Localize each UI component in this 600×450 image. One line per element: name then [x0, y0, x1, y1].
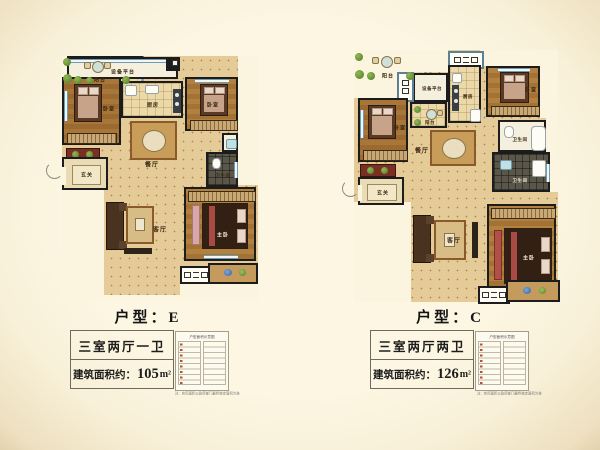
- area-table-title: 户型面积示意图: [480, 334, 523, 339]
- room-label-bedroom: 卧室: [525, 87, 537, 94]
- wardrobe: [491, 208, 556, 219]
- floorplan-e: 设备平台 卧室 厨房: [62, 56, 258, 300]
- bedside-rug: [192, 205, 200, 245]
- mask: [546, 118, 558, 152]
- room-label-dining: 餐厅: [415, 146, 429, 155]
- plan-c-spec: 三室两厅两卫: [371, 331, 473, 360]
- basin: [500, 160, 512, 170]
- hallway-cabinet: [360, 164, 396, 177]
- window-strip: [204, 255, 238, 259]
- plan-c-area-table: 户型面积示意图: [475, 331, 529, 391]
- basin: [226, 139, 237, 149]
- area-value: 126: [437, 366, 459, 383]
- room-kitchen: 厨房: [121, 81, 183, 118]
- window-strip: [546, 164, 550, 182]
- room-master: 主卧: [184, 187, 256, 261]
- plan-e-info-box: 三室两厅一卫 建筑面积约：105m²: [70, 330, 174, 389]
- room-label-living: 客厅: [447, 236, 461, 245]
- plan-e-area: 建筑面积约：105m²: [71, 360, 173, 388]
- decor-green: [239, 269, 246, 276]
- floorplan-c: 厨房 设备平台 阳台 卧室: [354, 50, 558, 302]
- room-label-platform: 设备平台: [422, 86, 442, 92]
- window-strip: [234, 162, 238, 178]
- mask: [540, 50, 558, 118]
- mask: [104, 295, 180, 300]
- room-label-bedroom: 卧室: [394, 125, 406, 132]
- balcony-table: [381, 56, 393, 68]
- mask: [354, 50, 448, 72]
- plan-e-area-table: 户型面积示意图: [175, 331, 229, 391]
- bedside-rug: [494, 230, 502, 280]
- counter: [173, 89, 181, 113]
- room-label-balcony-top: 阳台: [425, 120, 435, 126]
- plan-c-disclaimer: 注：实际面积以政府部门最终核定面积为准: [477, 391, 542, 396]
- area-table-title: 户型面积示意图: [180, 334, 223, 339]
- room-label-bath-bottom: 卫生间: [513, 178, 528, 184]
- room-bath-top: 卫生间: [498, 120, 546, 152]
- room-bedroom-right: 卧室: [486, 66, 540, 117]
- area-value: 105: [137, 366, 159, 383]
- room-balcony-top: 阳台: [410, 102, 447, 128]
- mask: [180, 282, 258, 300]
- door-swing-arc: [342, 180, 359, 197]
- room-label-bath: 卫生间: [216, 173, 231, 179]
- bed: [202, 203, 248, 249]
- room-label-entry: 玄关: [81, 172, 93, 179]
- display-shelf: [506, 280, 560, 302]
- wall-notch: [166, 57, 180, 71]
- room-label-master: 主卧: [217, 232, 229, 239]
- room-bedroom-left: 卧室: [62, 77, 121, 145]
- fridge: [125, 85, 137, 96]
- decor-blue: [224, 269, 232, 276]
- window-strip: [195, 79, 229, 83]
- area-unit: m²: [160, 369, 171, 380]
- decor-green: [539, 287, 546, 294]
- floorplan-sheet: 设备平台 卧室 厨房: [0, 0, 600, 450]
- sofa: [413, 215, 431, 263]
- bathtub: [531, 126, 546, 151]
- room-bath: 卫生间: [206, 152, 238, 187]
- room-label-balcony: 阳台: [382, 73, 394, 80]
- shower: [532, 160, 546, 177]
- display-shelf: [208, 263, 258, 284]
- mask: [62, 190, 104, 300]
- mask: [354, 202, 411, 302]
- sink: [145, 85, 159, 94]
- bed: [74, 84, 102, 122]
- plan-e-spec: 三室两厅一卫: [71, 331, 173, 360]
- tv-bench: [124, 248, 152, 254]
- balcony-table: [92, 61, 104, 73]
- counter: [452, 85, 459, 111]
- wardrobe: [188, 191, 256, 202]
- window-strip: [360, 110, 364, 138]
- bed: [200, 84, 228, 116]
- plan-c-area: 建筑面积约：126m²: [371, 360, 473, 388]
- room-entry: 玄关: [62, 157, 108, 190]
- toilet: [212, 158, 221, 169]
- dining-rug: [130, 121, 177, 160]
- room-label-kitchen: 厨房: [147, 102, 159, 109]
- room-label-living: 客厅: [153, 225, 167, 234]
- window-strip: [64, 91, 68, 121]
- wardrobe: [363, 150, 408, 161]
- area-label: 建筑面积约：: [373, 367, 436, 382]
- area-label: 建筑面积约：: [73, 367, 136, 382]
- room-bedroom-left: 卧室: [358, 98, 408, 162]
- room-entry: 玄关: [358, 177, 404, 205]
- plan-c-title: 户型：C: [370, 306, 530, 327]
- wardrobe: [190, 120, 238, 131]
- dining-rug: [430, 130, 476, 166]
- room-label-kitchen: 厨房: [463, 94, 473, 100]
- living-rug: [126, 206, 154, 244]
- room-label-balcony: 阳台: [94, 77, 106, 84]
- dining-table: [442, 138, 466, 159]
- wardrobe: [491, 106, 540, 116]
- wash-nook: [222, 133, 238, 152]
- mask: [550, 152, 558, 192]
- dining-table: [142, 130, 166, 152]
- room-label-platform: 设备平台: [111, 69, 135, 76]
- sofa: [106, 202, 124, 250]
- room-kitchen: 厨房: [448, 65, 481, 123]
- plan-c-info-box: 三室两厅两卫 建筑面积约：126m²: [370, 330, 474, 389]
- room-label-dining: 餐厅: [145, 160, 159, 169]
- bed: [368, 105, 396, 139]
- decor-blue: [523, 287, 531, 294]
- sink: [452, 73, 462, 83]
- room-label-entry: 玄关: [377, 190, 389, 197]
- fridge: [470, 109, 481, 122]
- plan-e-title: 户型：E: [68, 306, 228, 327]
- room-bath-bottom: 卫生间: [492, 152, 550, 192]
- room-label-bath-top: 卫生间: [513, 137, 528, 143]
- area-unit: m²: [460, 369, 471, 380]
- room-label-master: 主卧: [523, 255, 535, 262]
- wardrobe: [67, 133, 117, 144]
- area-table-rows: [478, 341, 526, 385]
- mask: [238, 56, 258, 185]
- area-table-rows: [178, 341, 226, 385]
- balcony-table: [426, 109, 437, 120]
- door-swing-arc: [46, 162, 63, 179]
- room-label-bedroom: 卧室: [103, 106, 115, 113]
- room-platform: 设备平台: [413, 73, 448, 102]
- tv-bench: [472, 222, 478, 258]
- room-label-bedroom: 卧室: [207, 102, 219, 109]
- room-bedroom-right: 卧室: [185, 77, 238, 131]
- plan-e-disclaimer: 注：实际面积以政府部门最终核定面积为准: [175, 391, 240, 396]
